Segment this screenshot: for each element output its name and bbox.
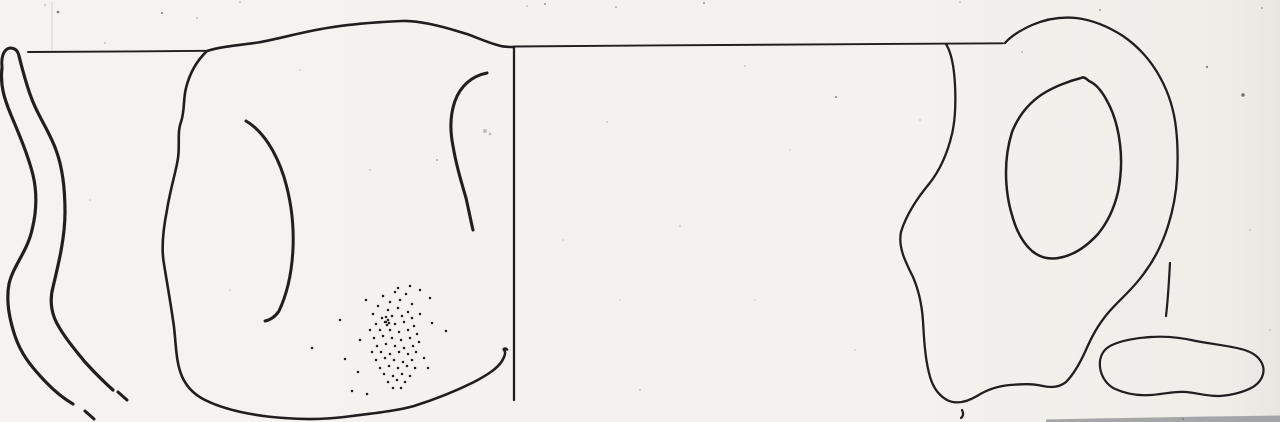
noise-speck [544, 3, 546, 5]
stipple-dot [387, 381, 390, 384]
stipple-dot [423, 357, 426, 360]
stipple-dot [375, 323, 378, 326]
stipple-dot [389, 301, 392, 304]
noise-speck [679, 225, 681, 227]
noise-speck [959, 1, 961, 3]
stipple-dot [398, 331, 401, 334]
handle-opening-inner-edge [1006, 77, 1121, 258]
noise-speck [436, 159, 438, 161]
stipple-dot [415, 351, 418, 354]
noise-speck [854, 349, 856, 351]
sherd-section-cap [2, 48, 19, 67]
stipple-dot [398, 351, 401, 354]
stipple-dot [409, 375, 412, 378]
stipple-dot [388, 322, 391, 325]
noise-speck [1206, 66, 1208, 68]
noise-speck [161, 12, 163, 14]
cup-interior-contour-left [246, 121, 293, 321]
noise-speck [483, 129, 487, 133]
stipple-dot [365, 299, 368, 302]
stipple-dot [311, 347, 314, 350]
illustration-svg [0, 0, 1280, 422]
stipple-dot [389, 353, 392, 356]
stipple-dot [394, 323, 397, 326]
stipple-dot [389, 329, 392, 332]
noise-speck [526, 5, 528, 7]
stipple-dot [429, 297, 432, 300]
noise-speck [196, 17, 198, 19]
stipple-dot [386, 324, 389, 327]
stipple-dot [403, 347, 406, 350]
noise-speck [104, 42, 106, 44]
stipple-dot [371, 351, 374, 354]
noise-speck [615, 6, 617, 8]
stipple-dot [384, 321, 387, 324]
stipple-dot [399, 299, 402, 302]
stipple-dot [383, 373, 386, 376]
stipple-dot [392, 375, 395, 378]
stipple-dot [366, 393, 369, 396]
stipple-dot [394, 345, 397, 348]
stipple-dot [357, 371, 360, 374]
noise-speck [44, 4, 46, 6]
stipple-dot [411, 303, 414, 306]
scan-noise-specks [44, 1, 1271, 420]
stipple-dot [412, 345, 415, 348]
cup-interior-contour-right [451, 73, 487, 230]
noise-speck [1021, 51, 1023, 53]
stipple-dot [414, 367, 417, 370]
noise-speck [299, 69, 301, 71]
stipple-dot [380, 351, 383, 354]
stipple-dot [445, 330, 448, 333]
noise-speck [562, 239, 564, 241]
stipple-dot [407, 311, 410, 314]
left-rim-level-line [28, 51, 206, 52]
stipple-dot [339, 319, 342, 322]
handle-base-tick [961, 410, 963, 418]
noise-speck [239, 1, 241, 3]
scan-shadow-band [1046, 416, 1280, 422]
stipple-dot [381, 317, 384, 320]
scanned-illustration-page [0, 0, 1280, 422]
stipple-dot [369, 329, 372, 332]
noise-speck [1182, 418, 1184, 420]
stipple-dot [375, 359, 378, 362]
stipple-dot [418, 341, 421, 344]
sherd-section-outer-dash [85, 411, 94, 419]
stipple-dot [376, 345, 379, 348]
noise-speck [754, 299, 756, 301]
handle-section-outline [1100, 337, 1264, 396]
stipple-dot [409, 337, 412, 340]
noise-speck [919, 119, 921, 121]
sherd-section-inner-dash [118, 392, 127, 400]
stipple-dot [387, 309, 390, 312]
stipple-dot [400, 339, 403, 342]
noise-speck [1241, 93, 1244, 96]
stipple-dot [407, 353, 410, 356]
stipple-dot [385, 343, 388, 346]
stipple-dot [385, 316, 388, 319]
stipple-dot [411, 317, 414, 320]
stipple-dot [419, 289, 422, 292]
cup-stipple-shading [311, 285, 448, 396]
noise-speck [619, 299, 621, 301]
stipple-dot [400, 387, 403, 390]
stipple-dot [351, 390, 354, 393]
stipple-dot [391, 337, 394, 340]
stipple-dot [413, 325, 416, 328]
noise-speck [639, 389, 641, 391]
stipple-dot [359, 339, 362, 342]
noise-speck [89, 199, 91, 201]
stipple-dot [384, 357, 387, 360]
stipple-dot [393, 359, 396, 362]
stipple-dot [404, 381, 407, 384]
noise-speck [703, 2, 705, 4]
noise-speck [789, 149, 791, 151]
stipple-dot [401, 315, 404, 318]
stipple-dot [407, 329, 410, 332]
stipple-dot [419, 313, 422, 316]
noise-speck [369, 169, 371, 171]
stipple-dot [397, 287, 400, 290]
noise-speck [1249, 229, 1251, 231]
noise-speck [57, 11, 60, 14]
stipple-dot [382, 335, 385, 338]
stipple-dot [405, 293, 408, 296]
stipple-dot [377, 305, 380, 308]
stipple-dot [392, 387, 395, 390]
noise-speck [1119, 159, 1121, 161]
stipple-dot [431, 322, 434, 325]
stipple-dot [406, 365, 409, 368]
handle-outline-outer [900, 18, 1177, 403]
stipple-dot [344, 358, 347, 361]
noise-speck [835, 96, 837, 98]
cup-profile-outline [163, 21, 514, 419]
stipple-dot [387, 319, 390, 322]
stipple-dot [397, 367, 400, 370]
stipple-dot [379, 329, 382, 332]
stipple-dot [401, 373, 404, 376]
stipple-dot [397, 307, 400, 310]
noise-speck [606, 121, 608, 123]
noise-speck [1269, 329, 1271, 331]
stipple-dot [409, 285, 412, 288]
noise-speck [229, 289, 231, 291]
noise-speck [1099, 9, 1101, 11]
stipple-dot [391, 315, 394, 318]
stipple-dot [403, 321, 406, 324]
stipple-dot [396, 379, 399, 382]
right-rim-level-line [514, 43, 1003, 46]
stipple-dot [394, 291, 397, 294]
stipple-dot [416, 333, 419, 336]
stipple-dot [402, 361, 405, 364]
stipple-dot [379, 367, 382, 370]
stipple-dot [382, 295, 385, 298]
stipple-dot [427, 367, 430, 370]
stipple-dot [411, 359, 414, 362]
noise-speck [1261, 7, 1263, 9]
handle-section-position-tick [1166, 263, 1170, 316]
noise-speck [744, 65, 746, 67]
noise-speck [489, 133, 492, 136]
stipple-dot [373, 337, 376, 340]
stipple-dot [372, 313, 375, 316]
stipple-dot [388, 365, 391, 368]
